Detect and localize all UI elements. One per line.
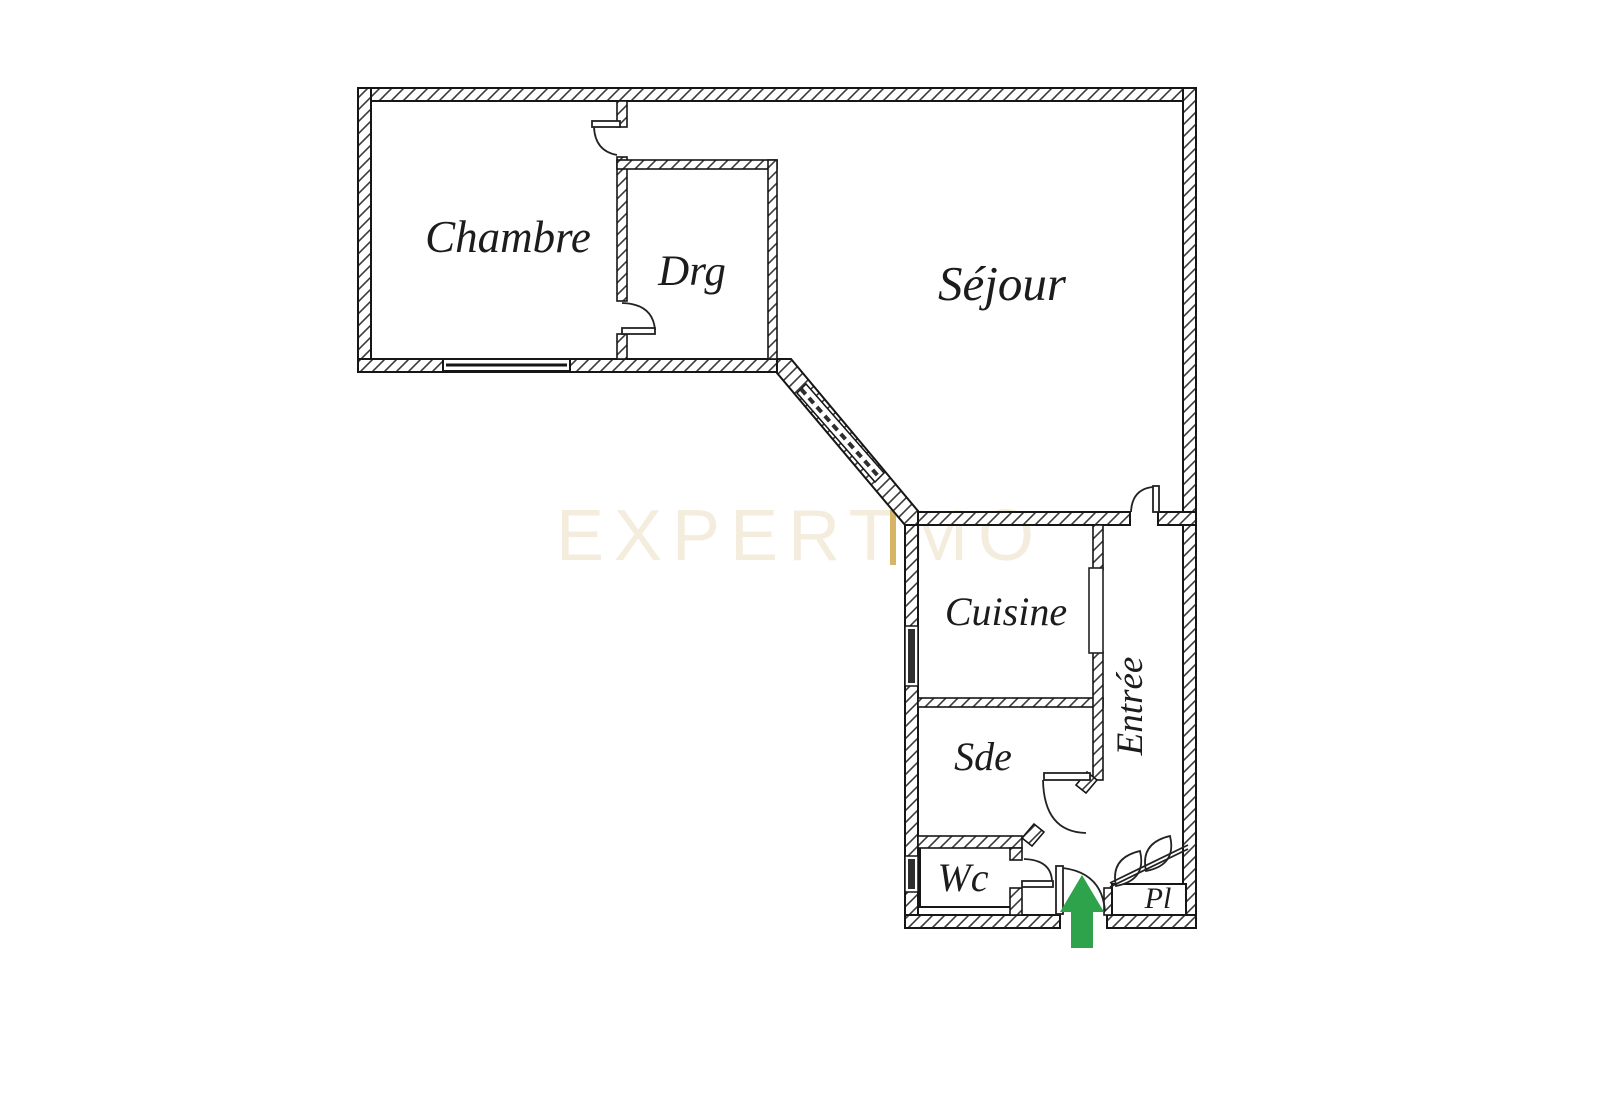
door-drg [622,303,655,334]
wall-sde-bottom [918,836,1022,848]
label-pl: Pl [1144,882,1172,915]
wall-strip-top-left-of-door [905,512,1130,525]
door-sejour-entree [1131,486,1159,512]
wall-drg-right [768,160,777,359]
watermark: EXPERT MO [556,496,1044,576]
wall-cuisine-entree-upper [1093,525,1103,570]
floor-plan-page: EXPERT MO [0,0,1600,1105]
label-drg: Drg [657,248,726,295]
door-pl-closet [1110,836,1188,887]
wall-left [358,88,371,372]
floor-plan-svg: EXPERT MO [0,0,1600,1105]
window-chambre [443,359,570,371]
door-chambre [592,121,620,155]
watermark-text-left: EXPERT [556,496,903,576]
wall-wc-right-lower [1010,888,1022,915]
wall-strip-bottom-left-of-door [905,915,1060,928]
label-entree: Entrée [1110,657,1151,757]
window-cuisine-left [905,626,918,686]
wall-chambre-right-low [617,334,627,359]
watermark-accent-bar [890,510,896,565]
label-sde: Sde [954,734,1012,779]
wall-cuisine-entree-lower [1093,652,1103,780]
label-chambre: Chambre [425,212,591,262]
door-wc [1022,859,1053,887]
window-diagonal [797,384,884,482]
label-cuisine: Cuisine [945,589,1067,634]
wall-right [1183,88,1196,928]
label-sejour: Séjour [938,256,1067,311]
window-wc-left [905,856,918,892]
wall-strip-top-right-of-door [1158,512,1196,525]
wall-drg-top [617,160,777,169]
wall-wc-right-upper [1010,848,1022,860]
label-wc: Wc [937,855,988,900]
wall-top [358,88,1196,101]
wall-cuisine-sde [918,698,1103,707]
wall-sde-diagonal-stub-bottom [1022,824,1044,846]
door-cuisine-slab [1089,568,1103,653]
wall-chambre-right-mid [617,157,627,301]
wall-strip-bottom-right-of-door [1107,915,1196,928]
windows [443,359,918,892]
watermark-text-right: MO [908,496,1044,576]
